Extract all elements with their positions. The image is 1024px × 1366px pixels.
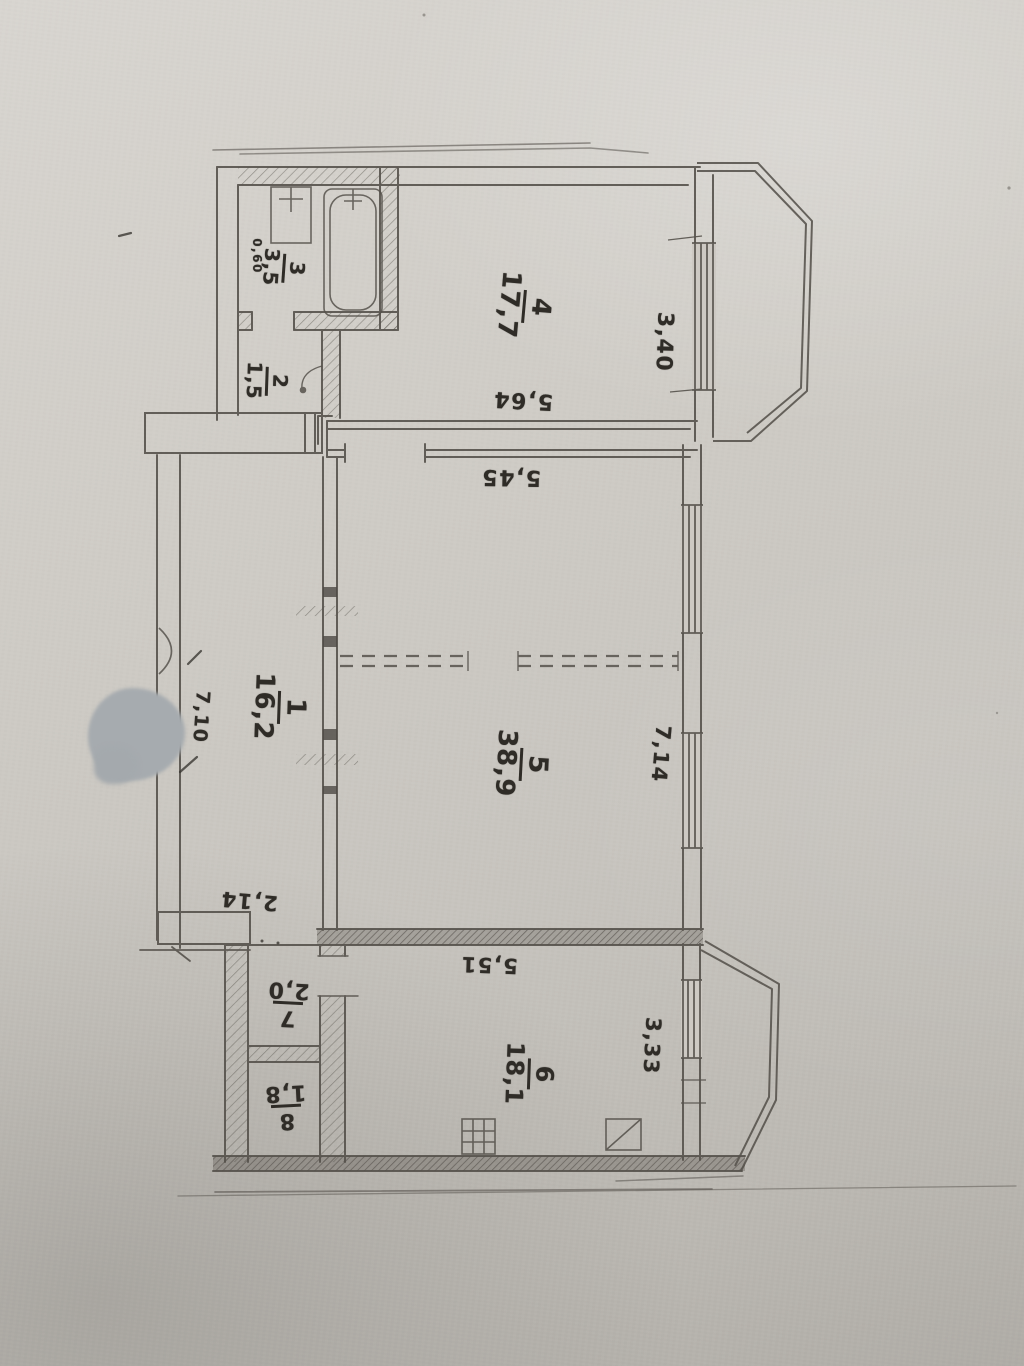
room-area: 38,9: [490, 728, 522, 798]
room-label-7-closet: 7 2,0: [266, 977, 311, 1030]
room-label-4: 4 17,7: [492, 269, 557, 342]
corridor-door-arc: [159, 628, 172, 674]
room-number: 5: [519, 747, 552, 782]
dim-5-45: 5,45: [481, 464, 542, 490]
dim-3-33: 3,33: [639, 1016, 666, 1075]
floorplan-drawing: [0, 0, 1024, 1366]
removed-partition-dashes: [340, 651, 678, 671]
dim-5-64: 5,64: [492, 386, 554, 414]
room-label-8-closet: 8 1,8: [264, 1080, 309, 1133]
window-room5-lower: [681, 733, 703, 848]
room-area: 1,8: [264, 1080, 307, 1106]
room-label-5: 5 38,9: [490, 728, 553, 799]
dim-3-40: 3,40: [650, 311, 677, 372]
room-number: 4: [521, 289, 555, 325]
stove-grid-symbol: [462, 1119, 495, 1154]
room6-symbols: [462, 1119, 641, 1154]
room-label-2-wc: 2 1,5: [243, 361, 291, 401]
room-number: 1: [277, 690, 309, 724]
window-room5-upper: [681, 505, 703, 633]
outer-contour-lines: [178, 143, 1016, 1196]
room-area: 16,2: [248, 672, 278, 741]
sink-symbol: [271, 187, 311, 243]
room-number: 6: [527, 1058, 557, 1091]
room-number: 8: [271, 1104, 303, 1132]
room-label-3-bathroom: 3 3,5: [259, 247, 308, 289]
bay-window-bottom: [701, 941, 779, 1171]
bathtub-symbol: [324, 189, 382, 316]
room-number: 3: [281, 253, 308, 284]
room-number: 7: [272, 1001, 304, 1029]
room-area: 17,7: [492, 269, 526, 339]
room-area: 1,5: [243, 361, 266, 400]
dim-0-60: 0,60: [250, 238, 264, 274]
room-number: 2: [265, 366, 291, 396]
vent-duct-symbol: [606, 1119, 641, 1150]
window-room6: [681, 980, 706, 1103]
room-label-6: 6 18,1: [500, 1041, 557, 1106]
room-area: 18,1: [500, 1041, 528, 1105]
room-label-1-hall: 1 16,2: [248, 672, 309, 742]
dim-7-14: 7,14: [647, 724, 676, 784]
floor-plan-photo: 3 3,5 2 1,5 4 17,7 1 16,2 5 38,9 6 18,1 …: [0, 0, 1024, 1366]
dim-2-14: 2,14: [219, 887, 279, 916]
wc-door-arc: [301, 366, 323, 393]
room-area: 2,0: [267, 977, 310, 1003]
dim-7-10: 7,10: [188, 690, 214, 744]
dim-5-51: 5,51: [460, 952, 519, 978]
